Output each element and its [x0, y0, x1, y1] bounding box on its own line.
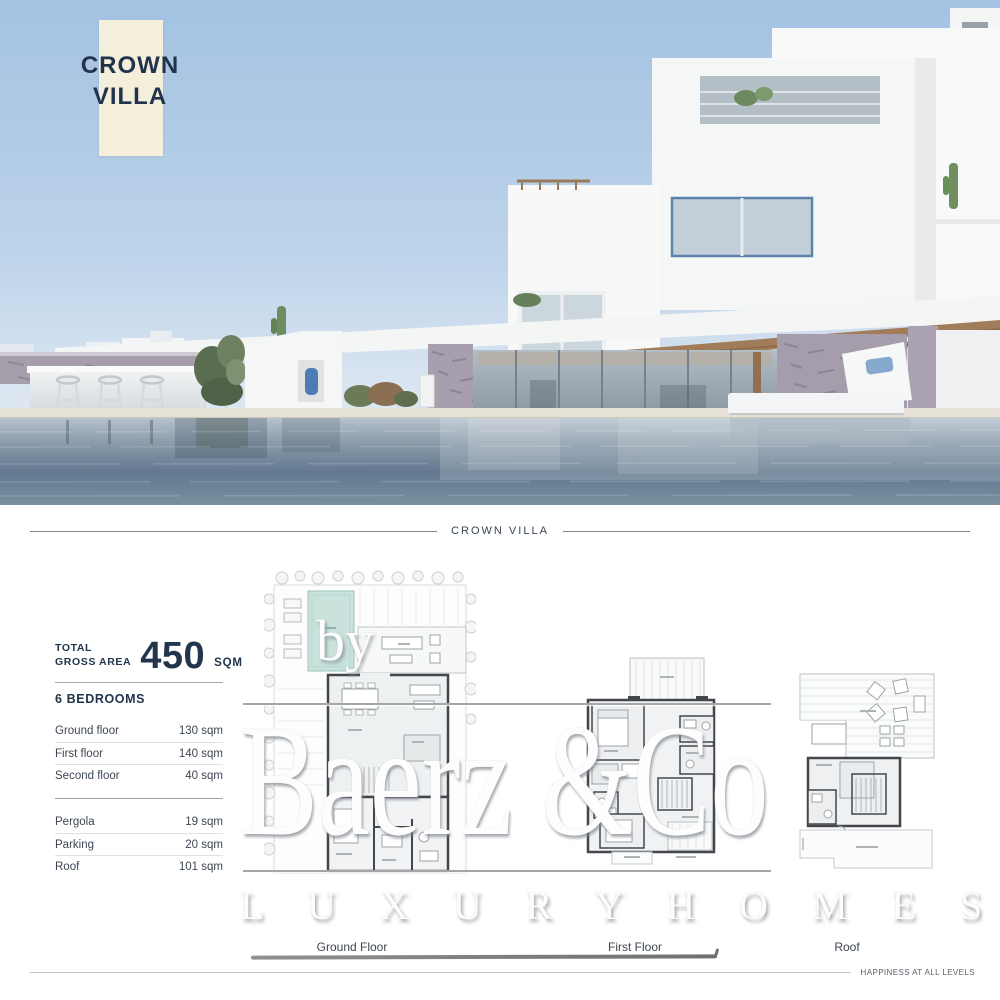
roof-plan — [782, 662, 954, 882]
brochure-page: CROWN VILLA CROWN VILLA TOTAL GROSS AREA… — [0, 0, 1000, 1000]
row-label: Roof — [55, 861, 79, 873]
footer: HAPPINESS AT ALL LEVELS — [30, 968, 975, 977]
table-row: Pergola 19 sqm — [55, 811, 223, 833]
total-gross-area: TOTAL GROSS AREA 450 SQM — [55, 640, 223, 672]
footer-line — [30, 972, 851, 973]
total-label-line2: GROSS AREA — [55, 655, 131, 669]
row-label: Ground floor — [55, 725, 119, 737]
total-gross-area-label: TOTAL GROSS AREA — [55, 641, 131, 672]
table-row: Second floor 40 sqm — [55, 764, 223, 786]
table-row: First floor 140 sqm — [55, 742, 223, 764]
table-group-divider — [55, 798, 223, 799]
hero-title-line1: CROWN — [70, 50, 190, 81]
floor-areas-table: Ground floor 130 sqm First floor 140 sqm… — [55, 720, 223, 786]
ground-floor-plan — [264, 569, 476, 892]
row-value: 20 sqm — [185, 839, 223, 851]
table-row: Ground floor 130 sqm — [55, 720, 223, 742]
pool-water — [0, 418, 1000, 505]
row-value: 140 sqm — [179, 748, 223, 760]
row-label: Parking — [55, 839, 94, 851]
table-row: Roof 101 sqm — [55, 855, 223, 877]
bedrooms-count: 6 BEDROOMS — [55, 692, 223, 706]
extra-areas-table: Pergola 19 sqm Parking 20 sqm Roof 101 s… — [55, 811, 223, 877]
row-value: 19 sqm — [185, 816, 223, 828]
watermark-tagline: L U X U R Y H O M E S — [240, 886, 780, 926]
row-value: 130 sqm — [179, 725, 223, 737]
divider-line-right — [563, 531, 970, 532]
first-floor-plan — [572, 652, 732, 882]
divider-line-left — [30, 531, 437, 532]
footer-tagline: HAPPINESS AT ALL LEVELS — [851, 968, 975, 977]
hero-title-line2: VILLA — [70, 81, 190, 112]
row-label: First floor — [55, 748, 103, 760]
table-row: Parking 20 sqm — [55, 833, 223, 855]
row-value: 40 sqm — [185, 770, 223, 782]
total-label-line1: TOTAL — [55, 641, 131, 655]
plan-pool — [308, 591, 354, 671]
section-divider: CROWN VILLA — [30, 523, 970, 539]
row-label: Second floor — [55, 770, 120, 782]
villa-photo: CROWN VILLA — [0, 0, 1000, 505]
watermark-underline — [251, 954, 717, 959]
row-value: 101 sqm — [179, 861, 223, 873]
total-area-value: 450 — [140, 640, 205, 672]
stats-divider — [55, 682, 223, 683]
total-area-unit: SQM — [214, 657, 243, 672]
row-label: Pergola — [55, 816, 95, 828]
roof-label: Roof — [787, 940, 907, 954]
hero-villa-title: CROWN VILLA — [70, 50, 190, 112]
area-stats-panel: TOTAL GROSS AREA 450 SQM 6 BEDROOMS Grou… — [55, 640, 223, 877]
first-floor-label: First Floor — [575, 940, 695, 954]
section-title: CROWN VILLA — [437, 525, 563, 537]
ground-floor-label: Ground Floor — [292, 940, 412, 954]
